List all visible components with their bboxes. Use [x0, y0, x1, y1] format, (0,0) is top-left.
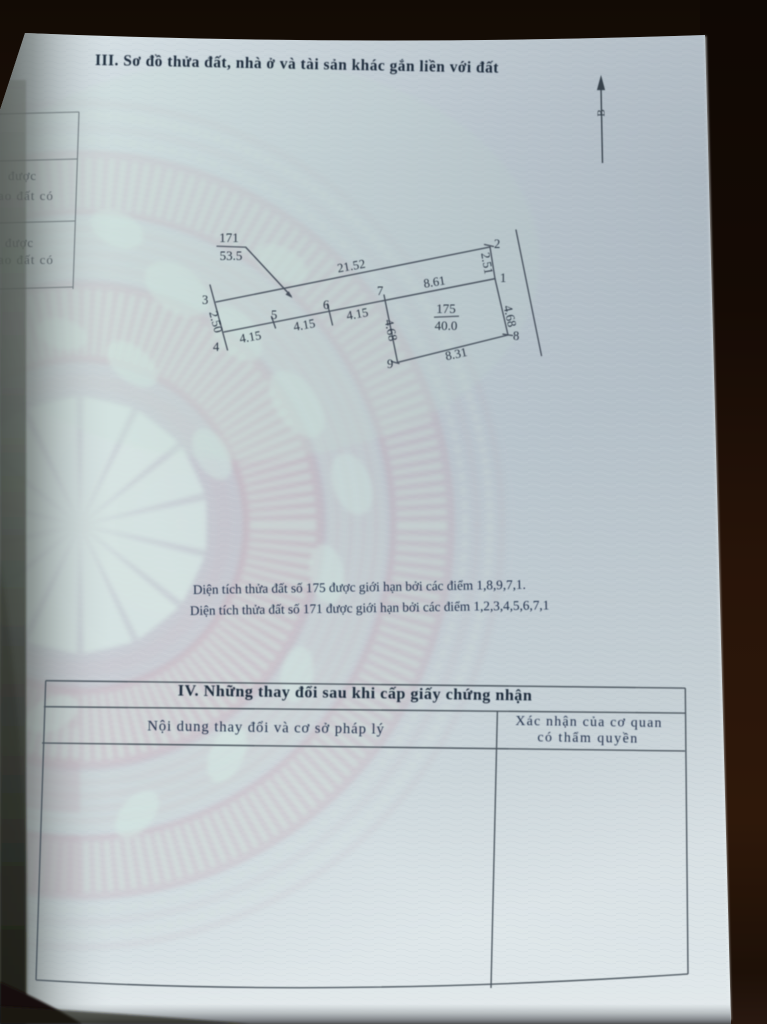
svg-text:7: 7 — [377, 284, 383, 298]
svg-text:Nội dung thay đổi và cơ sở phá: Nội dung thay đổi và cơ sở pháp lý — [147, 718, 385, 737]
svg-text:6: 6 — [323, 298, 329, 312]
svg-text:3: 3 — [202, 293, 208, 307]
svg-text:175: 175 — [436, 301, 456, 316]
svg-text:B: B — [596, 109, 608, 116]
svg-text:Xác nhận của cơ quan: Xác nhận của cơ quan — [515, 713, 662, 730]
svg-text:53.5: 53.5 — [220, 248, 243, 263]
svg-text:có thẩm quyền: có thẩm quyền — [537, 729, 639, 745]
svg-text:5: 5 — [271, 308, 277, 322]
svg-text:40.0: 40.0 — [435, 318, 458, 333]
svg-text:2: 2 — [494, 237, 500, 251]
svg-text:4: 4 — [213, 340, 220, 354]
svg-text:8: 8 — [513, 329, 519, 343]
svg-text:171: 171 — [219, 230, 239, 245]
svg-text:9: 9 — [387, 357, 393, 371]
svg-text:1: 1 — [500, 271, 506, 285]
